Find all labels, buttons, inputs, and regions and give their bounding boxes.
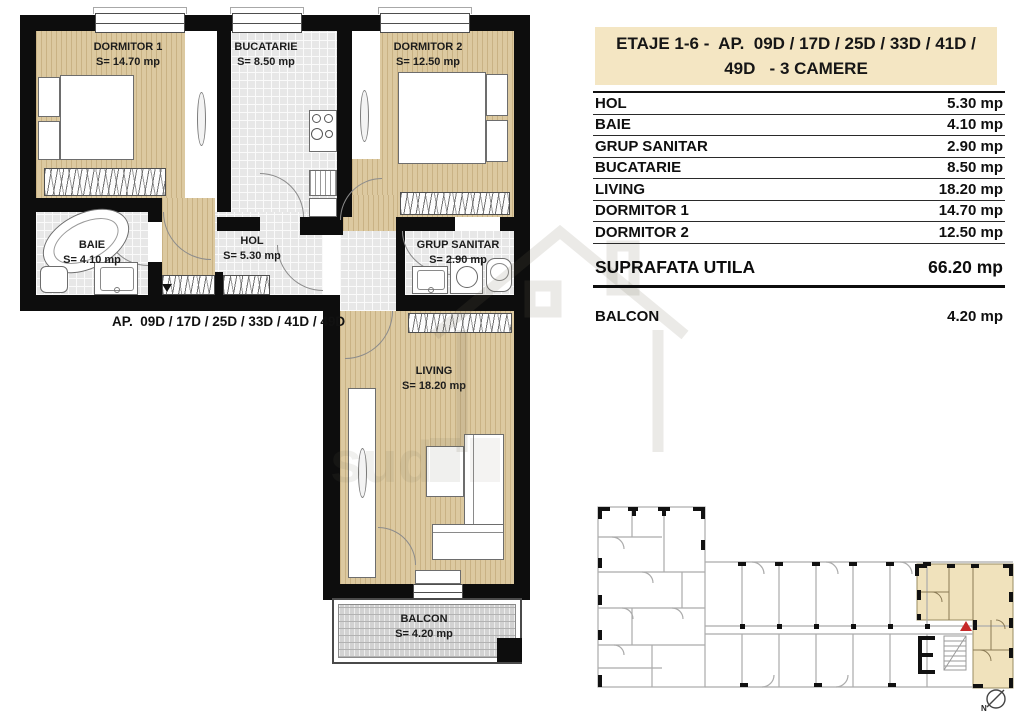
room-name: GRUP SANITAR [417, 239, 500, 251]
title-line-1: ETAJE 1-6 - AP. 09D / 17D / 25D / 33D / … [616, 31, 976, 56]
dormitor2-wardrobe [400, 192, 510, 215]
dormitor1-bed-pillow [38, 77, 60, 117]
living-wardrobe-handle [358, 448, 367, 498]
room-area: S= 18.20 mp [402, 380, 466, 392]
balcony-corner-block [497, 638, 522, 662]
wall-bucatarie-right [337, 31, 352, 217]
dormitor1-radiator [197, 92, 206, 146]
row-label: GRUP SANITAR [595, 137, 708, 157]
balcon-label: BALCON S= 4.20 mp [395, 612, 453, 642]
room-area: S= 8.50 mp [237, 56, 295, 68]
row-value: 18.20 mp [939, 180, 1003, 200]
balcony-label: BALCON [595, 308, 659, 325]
north-label: N [981, 704, 987, 713]
row-value: 4.10 mp [947, 115, 1003, 135]
stove-burner [312, 114, 321, 123]
apartment-caption: AP. 09D / 17D / 25D / 33D / 41D / 49D [112, 314, 345, 329]
dormitor2-bed-pillow [486, 120, 508, 162]
room-area: S= 5.30 mp [223, 250, 281, 262]
building-key-plan: N [592, 500, 1022, 715]
dormitor1-wardrobe [44, 168, 166, 196]
table-row: HOL 5.30 mp [593, 93, 1005, 115]
dormitor2-window [380, 13, 470, 33]
stove-burner [311, 128, 323, 140]
total-value: 66.20 mp [928, 257, 1003, 278]
north-compass-icon: N [981, 690, 1005, 713]
total-label: SUPRAFATA UTILA [595, 257, 755, 278]
wall-dormitor1-bucatarie [217, 31, 231, 212]
staircase [944, 636, 966, 670]
room-name: BALCON [400, 613, 447, 625]
room-area: S= 14.70 mp [96, 56, 160, 68]
dormitor1-label: DORMITOR 1 S= 14.70 mp [94, 40, 163, 70]
room-area: S= 4.20 mp [395, 628, 453, 640]
floorplan-page: { "title_box": { "line1": "ETAJE 1-6 - A… [0, 0, 1026, 720]
living-wardrobe-top [408, 313, 512, 333]
dormitor1-bed [60, 75, 134, 160]
stove-burner [325, 130, 333, 138]
dormitor2-radiator [360, 90, 369, 142]
row-value: 2.90 mp [947, 137, 1003, 157]
wall-hol-hatch-divider [215, 272, 223, 295]
wall-grup-top-left [396, 217, 455, 231]
washing-machine-door [456, 266, 478, 288]
table-row: DORMITOR 2 12.50 mp [593, 222, 1005, 244]
room-name: HOL [240, 235, 263, 247]
balcony-value: 4.20 mp [947, 308, 1003, 325]
room-name: DORMITOR 2 [394, 41, 463, 53]
baie-label: BAIE S= 4.10 mp [63, 238, 121, 268]
living-label: LIVING S= 18.20 mp [402, 364, 466, 394]
row-label: BUCATARIE [595, 158, 681, 178]
wall-living-left [323, 295, 340, 600]
areas-table: HOL 5.30 mp BAIE 4.10 mp GRUP SANITAR 2.… [593, 91, 1005, 244]
table-row: LIVING 18.20 mp [593, 179, 1005, 201]
table-row: BAIE 4.10 mp [593, 115, 1005, 137]
hol-wardrobe-right [223, 275, 270, 295]
wall-bottom-left [20, 295, 340, 311]
row-label: LIVING [595, 180, 645, 200]
table-row: BUCATARIE 8.50 mp [593, 158, 1005, 180]
dormitor1-bed-pillow [38, 121, 60, 160]
corridor-floor [340, 231, 396, 295]
section-arrow [162, 284, 172, 292]
dormitor2-label: DORMITOR 2 S= 12.50 mp [394, 40, 463, 70]
grup-sink-drain [428, 287, 434, 293]
kitchen-sink-cabinet [309, 198, 337, 217]
sofa-cushion-line [433, 532, 503, 533]
room-area: S= 4.10 mp [63, 254, 121, 266]
room-name: DORMITOR 1 [94, 41, 163, 53]
coffee-table [426, 446, 464, 497]
room-area: S= 12.50 mp [396, 56, 460, 68]
bucatarie-window [232, 13, 302, 33]
title-box: ETAJE 1-6 - AP. 09D / 17D / 25D / 33D / … [595, 27, 997, 85]
sofa-seat [432, 524, 504, 560]
row-value: 8.50 mp [947, 158, 1003, 178]
row-label: BAIE [595, 115, 631, 135]
row-label: DORMITOR 1 [595, 201, 689, 221]
kitchen-cabinet [309, 170, 337, 196]
bucatarie-label: BUCATARIE S= 8.50 mp [234, 40, 297, 70]
balcony-area-row: BALCON 4.20 mp [593, 308, 1005, 325]
wall-baie-right-lower [148, 262, 162, 295]
row-label: HOL [595, 94, 627, 114]
table-row: GRUP SANITAR 2.90 mp [593, 136, 1005, 158]
table-row: DORMITOR 1 14.70 mp [593, 201, 1005, 223]
living-entry-floor [340, 295, 396, 311]
wall-left [20, 15, 36, 311]
baie-toilet [40, 266, 68, 293]
row-value: 12.50 mp [939, 223, 1003, 243]
floor-plan: DORMITOR 1 S= 14.70 mp BUCATARIE S= 8.50… [0, 0, 560, 720]
room-name: LIVING [416, 365, 453, 377]
left-wing-walls [598, 507, 705, 687]
row-label: DORMITOR 2 [595, 223, 689, 243]
room-name: BUCATARIE [234, 41, 297, 53]
dormitor1-window [95, 13, 185, 33]
baie-sink-drain [114, 287, 120, 293]
wall-baie-right-upper [148, 212, 162, 222]
row-value: 14.70 mp [939, 201, 1003, 221]
dormitor2-bed-pillow [486, 74, 508, 116]
wall-bucatarie-bottom-left [217, 217, 260, 231]
stove-burner [324, 114, 333, 123]
room-area: S= 2.90 mp [429, 254, 487, 266]
wall-grup-bottom [396, 295, 530, 311]
grup-sanitar-label: GRUP SANITAR S= 2.90 mp [417, 238, 500, 268]
room-name: BAIE [79, 239, 105, 251]
title-line-2: 49D - 3 CAMERE [724, 56, 868, 81]
hol-label: HOL S= 5.30 mp [223, 234, 281, 264]
balcony-door-threshold [415, 570, 461, 584]
row-value: 5.30 mp [947, 94, 1003, 114]
wall-bucatarie-bottom-right [300, 217, 343, 235]
dormitor2-bed [398, 72, 486, 164]
wall-grup-top-right [500, 217, 514, 231]
grup-sink [412, 266, 448, 294]
total-usable-area-row: SUPRAFATA UTILA 66.20 mp [593, 251, 1005, 288]
